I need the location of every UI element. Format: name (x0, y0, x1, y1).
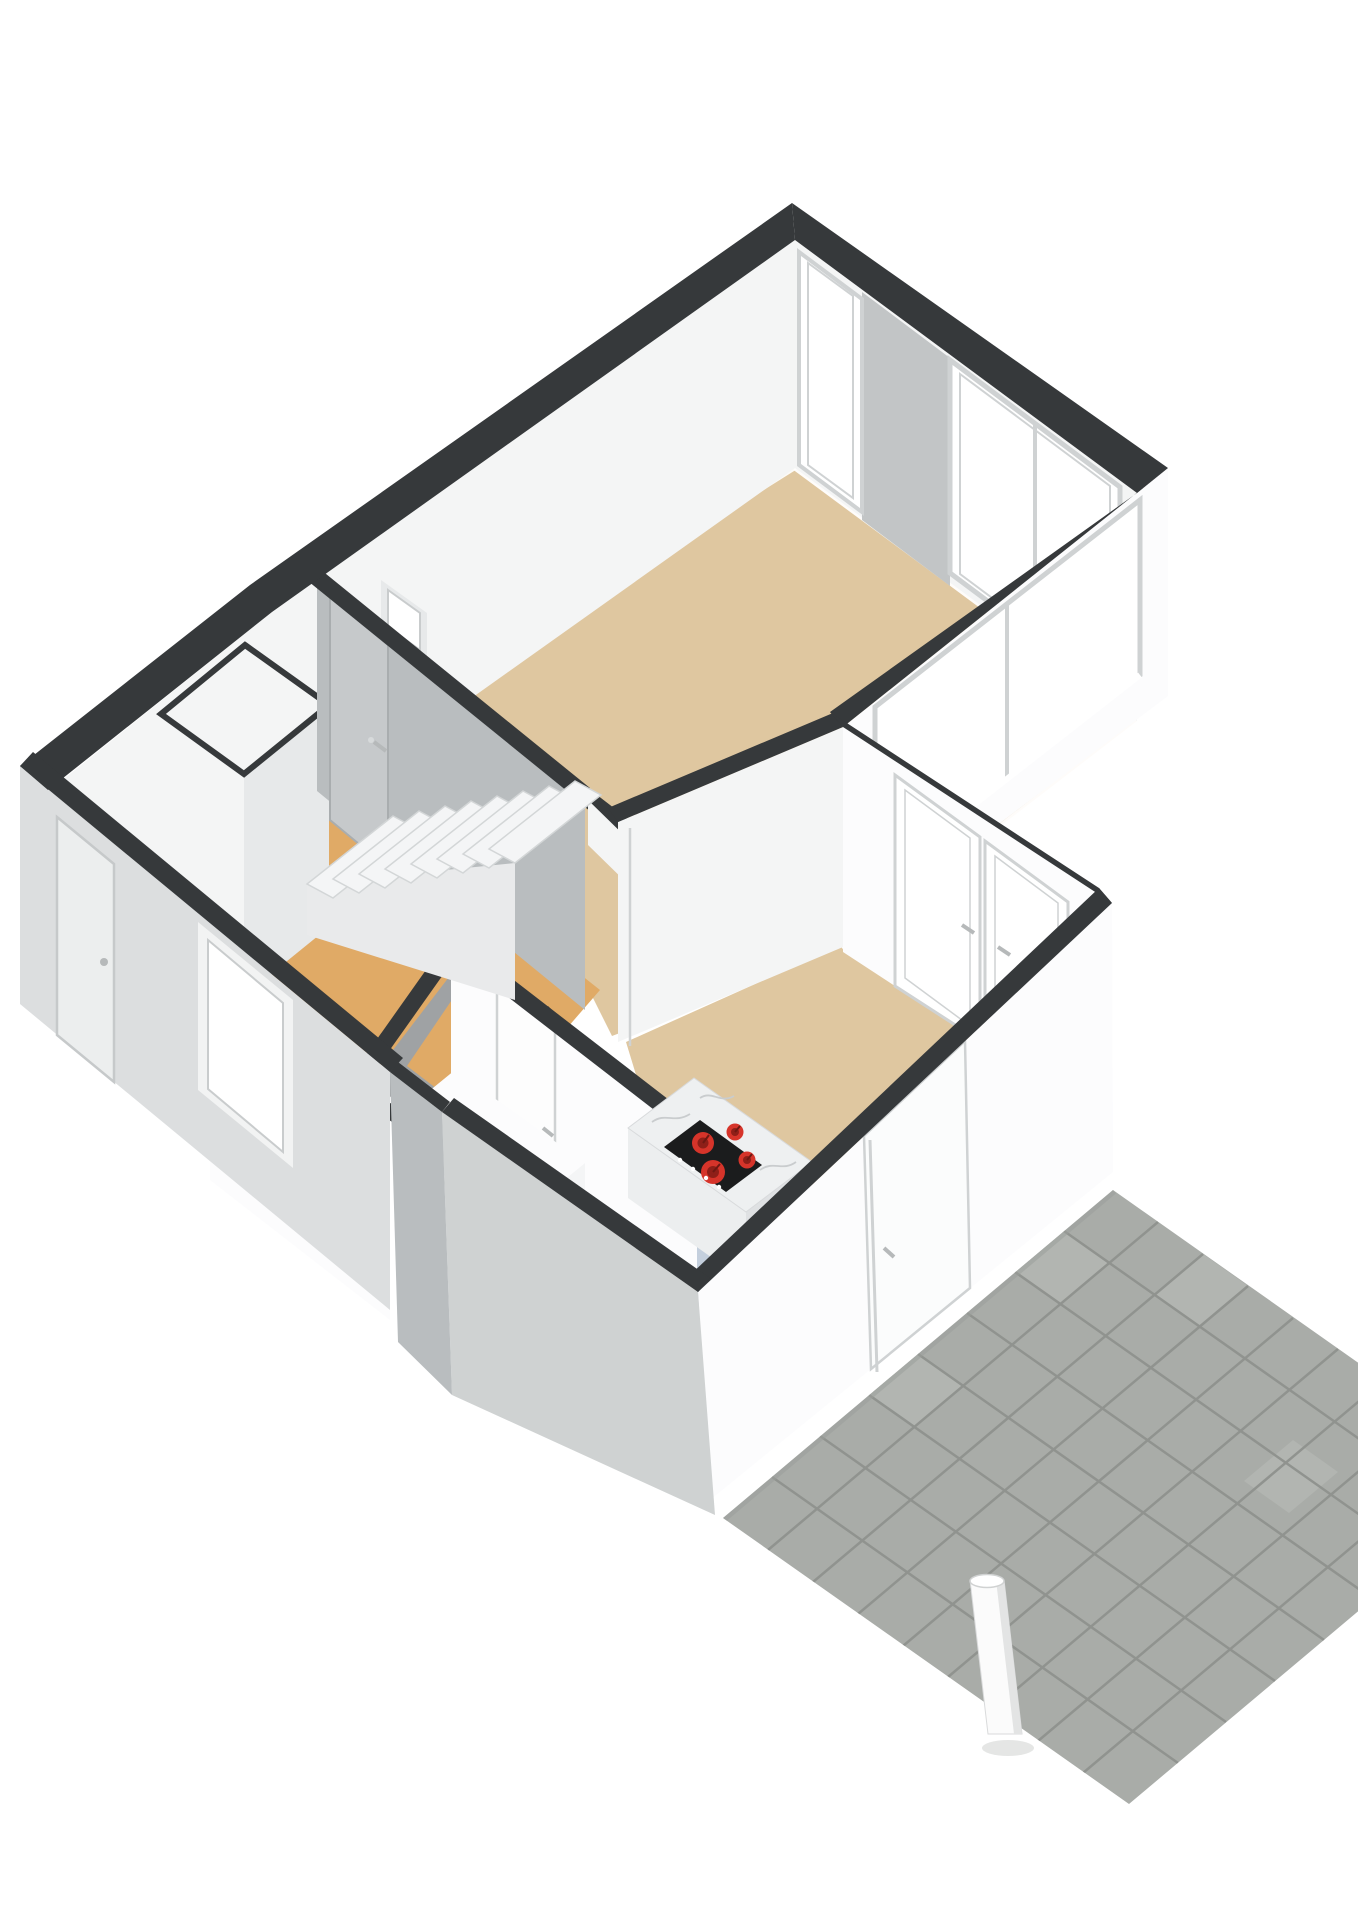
cooktop-burner (692, 1132, 714, 1154)
pole-top (970, 1575, 1004, 1588)
front-door (57, 817, 114, 1082)
pole-shadow (982, 1740, 1034, 1756)
cooktop-burner (739, 1152, 756, 1169)
cooktop-burner (727, 1124, 744, 1141)
floorplan-3d-rendering (0, 0, 1358, 1920)
cooktop-burner (701, 1160, 725, 1184)
floorplan-stage (0, 0, 1358, 1920)
door-handle (100, 958, 108, 966)
northeast-window-small (799, 252, 862, 512)
